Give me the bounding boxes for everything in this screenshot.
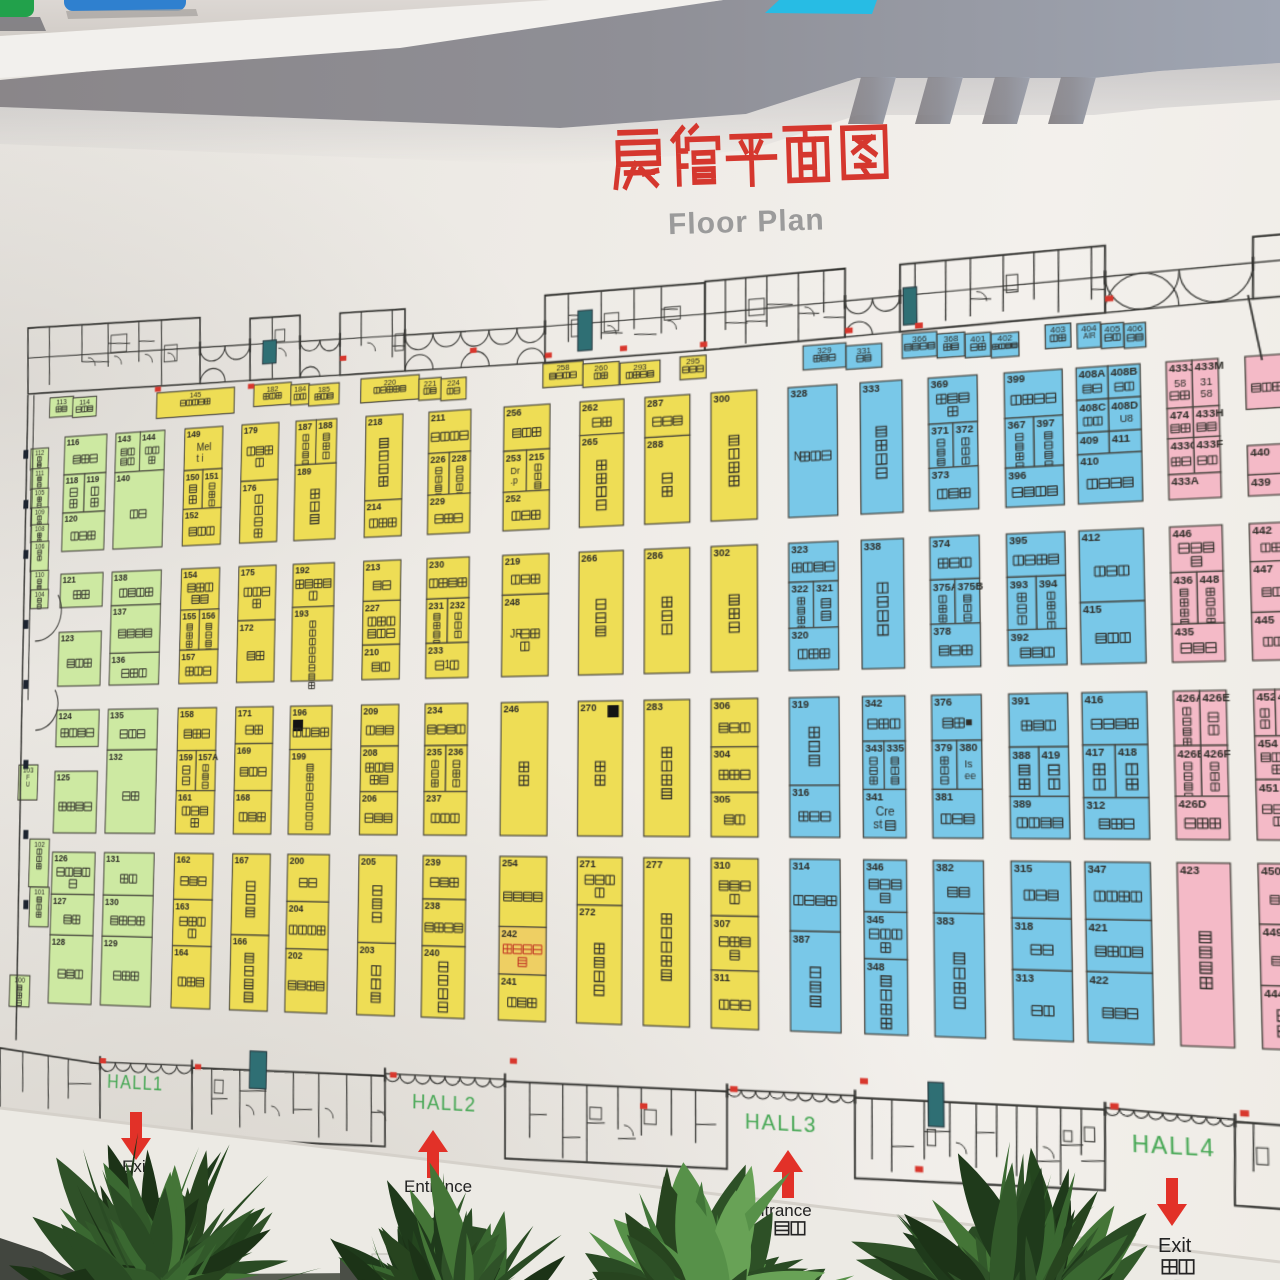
svg-text:Exit: Exit <box>1158 1235 1192 1257</box>
